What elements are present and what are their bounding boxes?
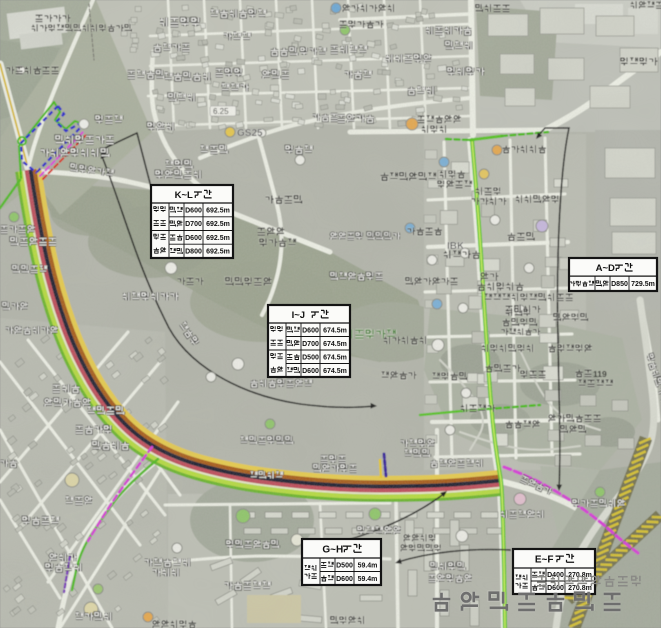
svg-text:692.5m: 692.5m [206,221,230,228]
svg-text:D700: D700 [185,221,202,228]
svg-text:674.5m: 674.5m [323,354,347,361]
svg-text:I~J: I~J [292,310,305,321]
svg-text:D500: D500 [302,354,319,361]
svg-text:674.5m: 674.5m [323,368,347,375]
svg-text:692.5m: 692.5m [206,208,230,215]
svg-text:D600: D600 [302,327,319,334]
svg-text:59.4m: 59.4m [358,562,378,569]
svg-text:59.4m: 59.4m [358,576,378,583]
svg-text:674.5m: 674.5m [323,327,347,334]
svg-text:729.5m: 729.5m [631,281,655,288]
svg-text:D700: D700 [302,341,319,348]
svg-text:D600: D600 [185,208,202,215]
svg-text:D850: D850 [611,281,628,288]
svg-text:D400: D400 [547,572,564,579]
svg-text:692.5m: 692.5m [206,235,230,242]
svg-text:D600: D600 [302,368,319,375]
svg-text:D800: D800 [185,249,202,256]
svg-text:D500: D500 [336,562,353,569]
svg-text:D600: D600 [185,235,202,242]
svg-text:E~F: E~F [535,555,554,566]
svg-text:G~H: G~H [322,545,343,556]
svg-text:K~L: K~L [175,190,193,201]
svg-text:692.5m: 692.5m [206,249,230,256]
svg-text:D600: D600 [547,585,564,592]
svg-text:D600: D600 [336,576,353,583]
svg-text:A~D: A~D [596,263,615,274]
svg-text:674.5m: 674.5m [323,341,347,348]
